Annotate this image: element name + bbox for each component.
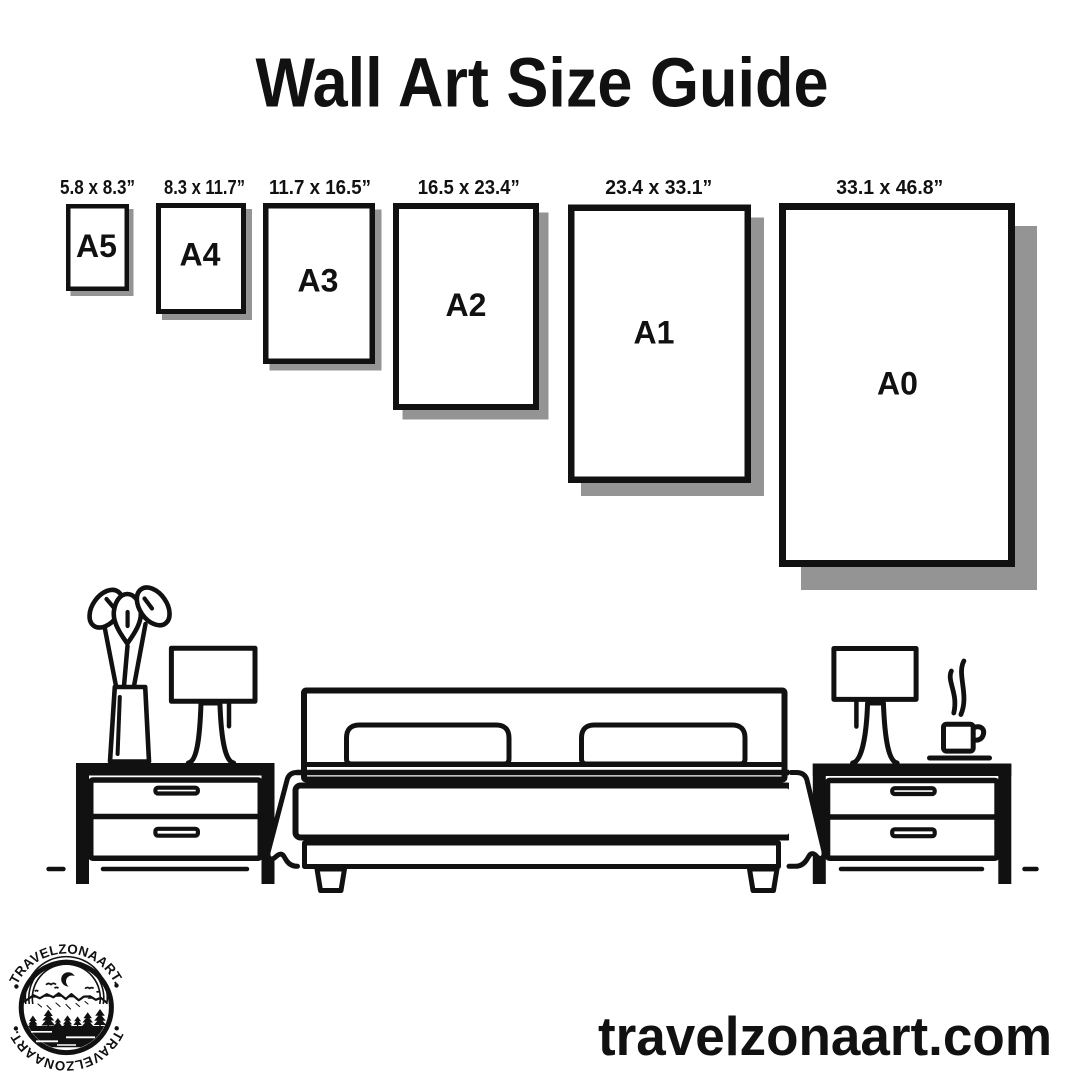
svg-text:A2: A2 <box>446 287 487 323</box>
svg-text:16.5 x 23.4”: 16.5 x 23.4” <box>418 176 520 199</box>
svg-text:A1: A1 <box>634 314 675 350</box>
svg-text:A4: A4 <box>180 236 221 272</box>
svg-text:Wall Art Size Guide: Wall Art Size Guide <box>256 44 829 122</box>
svg-text:23.4 x 33.1”: 23.4 x 33.1” <box>605 176 712 199</box>
svg-text:A3: A3 <box>298 262 339 298</box>
svg-text:33.1 x 46.8”: 33.1 x 46.8” <box>836 176 943 199</box>
svg-text:11.7 x 16.5”: 11.7 x 16.5” <box>269 176 371 199</box>
svg-text:A0: A0 <box>877 365 918 401</box>
svg-text:travelzonaart.com: travelzonaart.com <box>598 1005 1052 1067</box>
svg-text:8.3 x 11.7”: 8.3 x 11.7” <box>164 176 245 199</box>
svg-text:5.8 x 8.3”: 5.8 x 8.3” <box>60 176 135 199</box>
svg-text:A5: A5 <box>76 228 117 264</box>
